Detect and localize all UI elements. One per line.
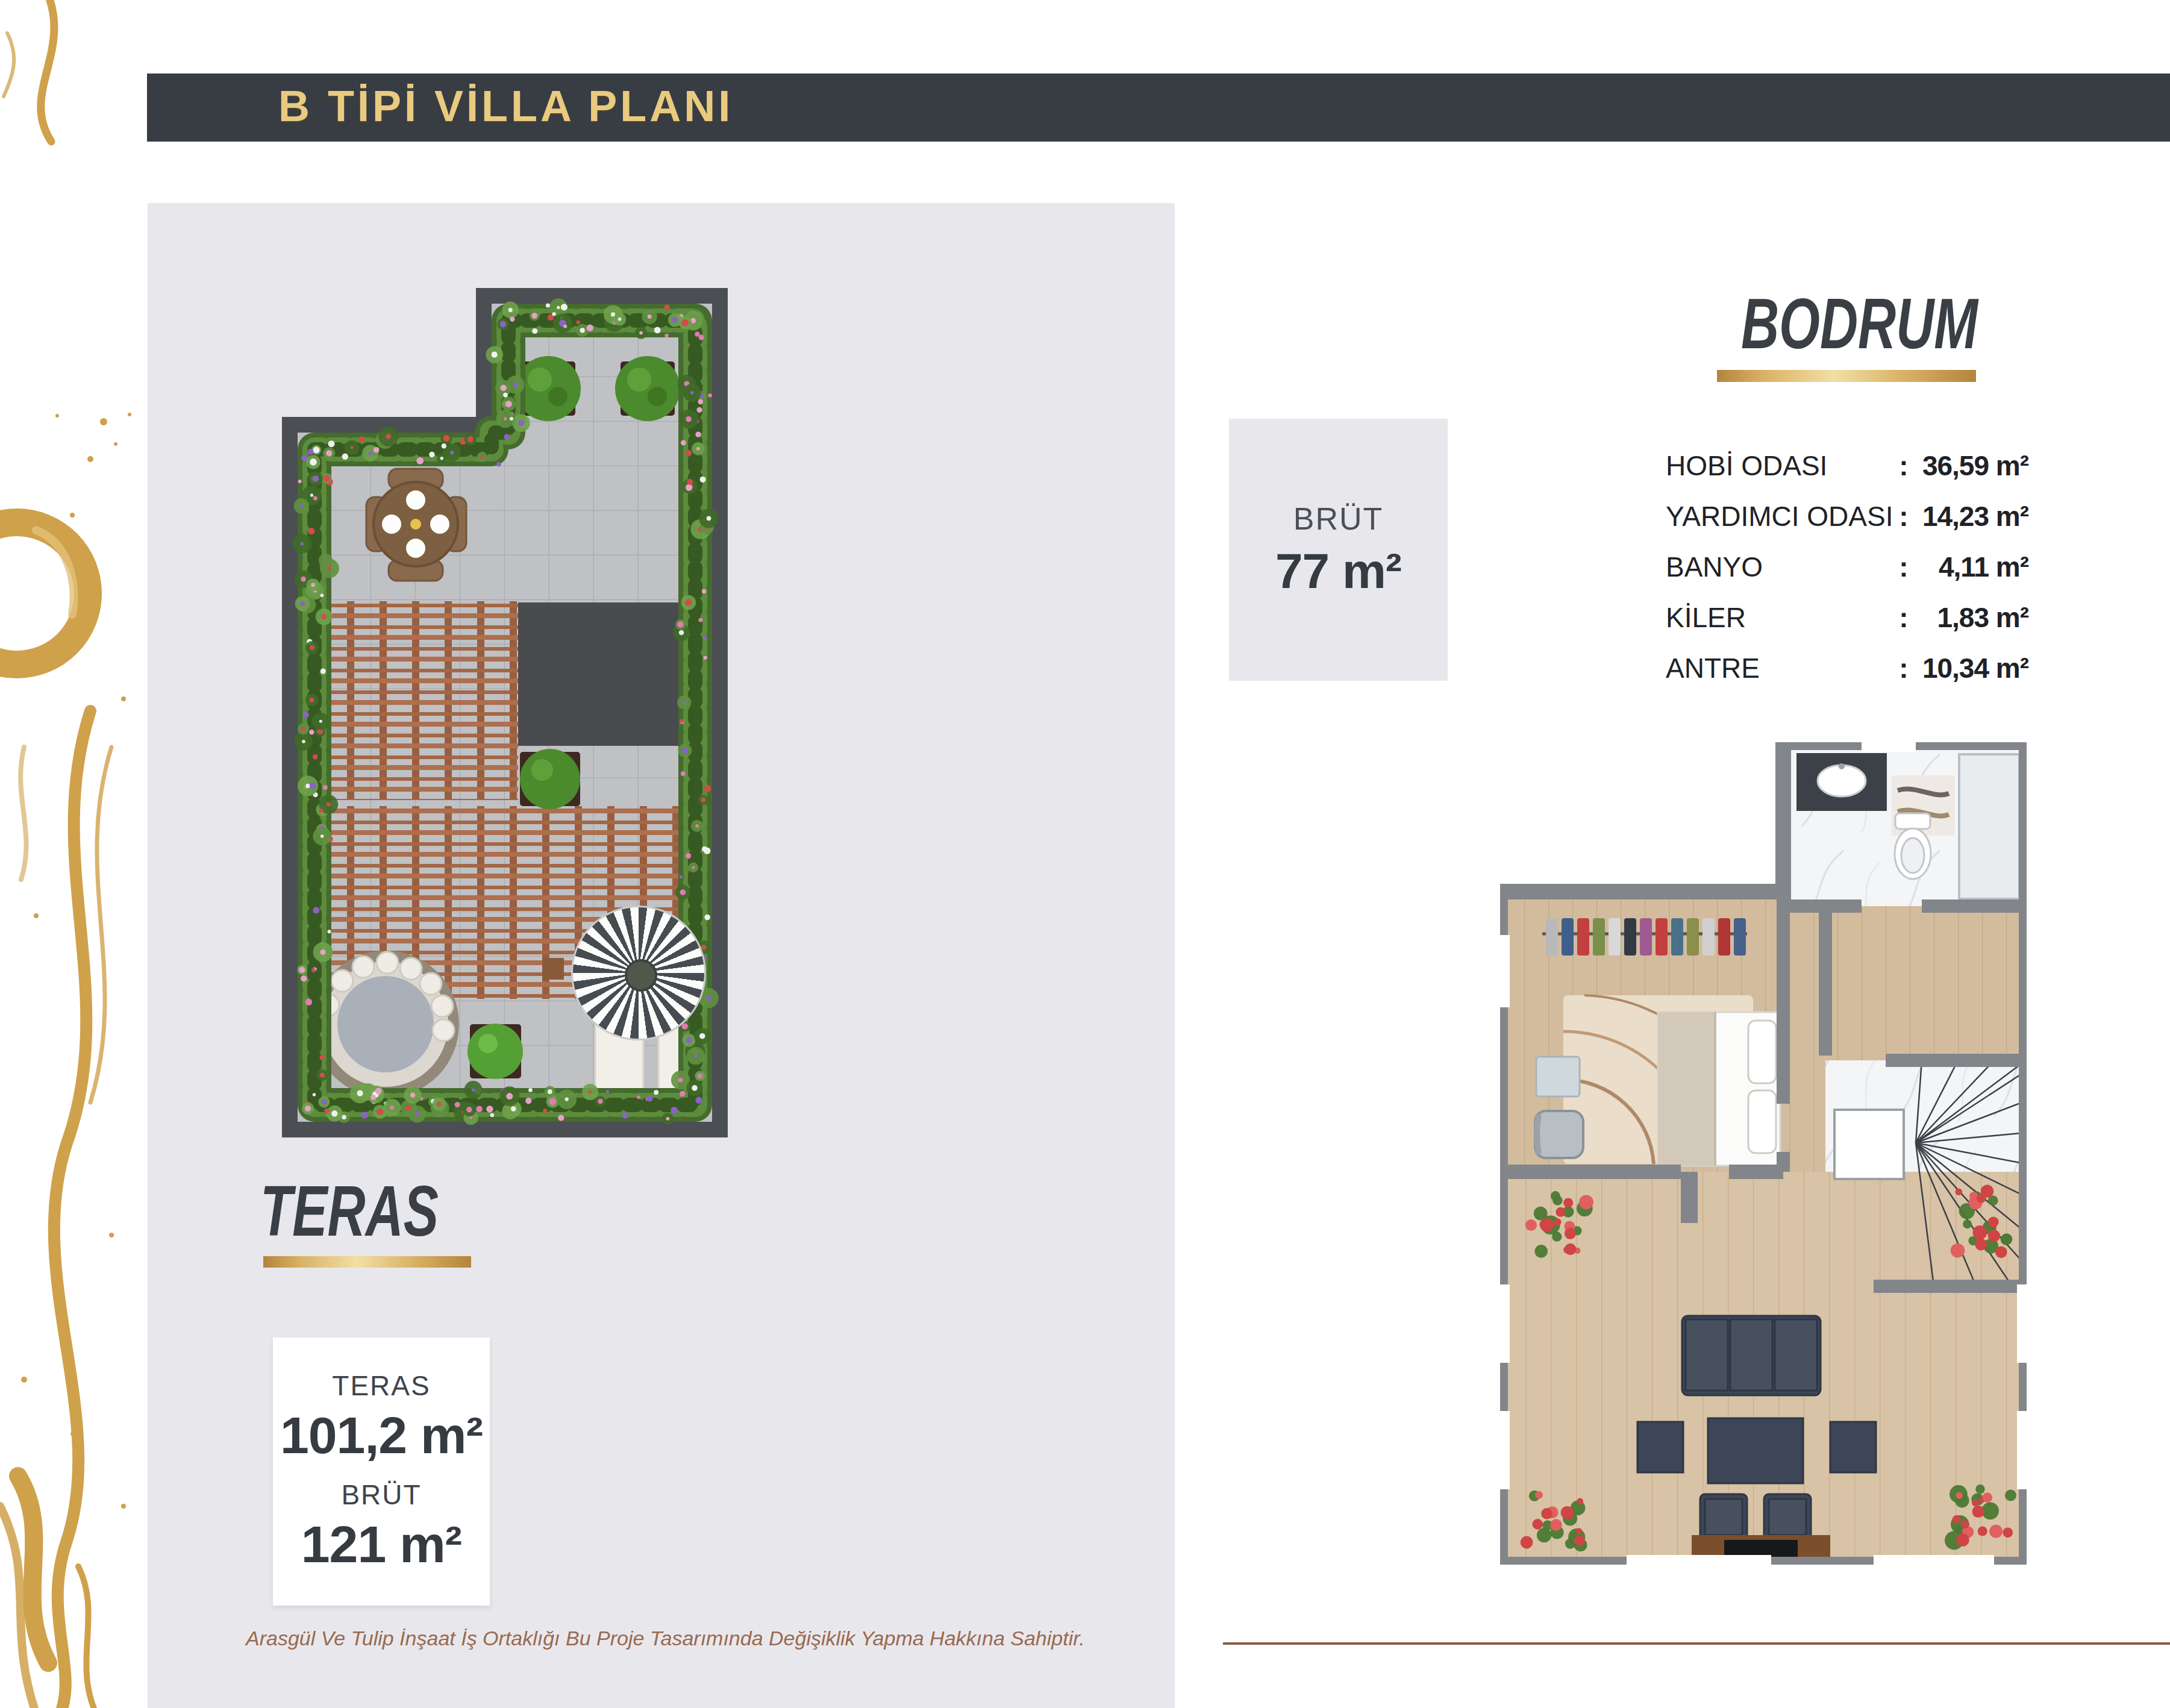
room-row: HOBİ ODASI:36,59 m² xyxy=(1666,440,2028,491)
bathroom-sink xyxy=(1796,753,1887,811)
coffee-table xyxy=(1708,1418,1803,1483)
room-separator: : xyxy=(1895,601,1913,634)
shower xyxy=(1959,754,2019,899)
stool-right xyxy=(1830,1422,1876,1472)
room-area: 1,83 m² xyxy=(1913,601,2028,634)
room-separator: : xyxy=(1895,551,1913,583)
wall-stub xyxy=(1681,1172,1698,1223)
planter-bush xyxy=(615,356,680,421)
room-row: ANTRE:10,34 m² xyxy=(1666,643,2028,693)
brochure-page: B TİPİ VİLLA PLANI xyxy=(0,0,2170,1708)
room-row: YARDIMCI ODASI:14,23 m² xyxy=(1666,491,2028,542)
bodrum-gross-value: 77 m² xyxy=(1275,543,1401,599)
bodrum-floor-plan-image xyxy=(1500,742,2027,1565)
teras-title: TERAS xyxy=(260,1175,439,1247)
room-name: BANYO xyxy=(1666,551,1895,583)
room-separator: : xyxy=(1895,449,1913,482)
room-area: 10,34 m² xyxy=(1913,652,2028,684)
pergola-left xyxy=(325,601,518,800)
page-title: B TİPİ VİLLA PLANI xyxy=(278,81,733,130)
side-table xyxy=(1536,1057,1580,1096)
room-name: ANTRE xyxy=(1666,652,1895,684)
room-area: 4,11 m² xyxy=(1913,551,2028,583)
bodrum-gross-box: BRÜT 77 m² xyxy=(1229,419,1448,681)
teras-gross-label: BRÜT xyxy=(341,1478,421,1511)
teras-area-value: 101,2 m² xyxy=(280,1406,483,1465)
round-daybed xyxy=(312,951,459,1098)
stool-left xyxy=(1637,1422,1683,1472)
teras-gold-underline xyxy=(263,1256,471,1268)
bed xyxy=(1658,1012,1780,1166)
room-separator: : xyxy=(1895,652,1913,684)
room-row: KİLER:1,83 m² xyxy=(1666,592,2028,643)
room-name: KİLER xyxy=(1666,601,1895,634)
footer-divider-line xyxy=(1223,1642,2170,1645)
room-separator: : xyxy=(1895,500,1913,533)
armchair-bedroom xyxy=(1535,1111,1583,1158)
room-name: HOBİ ODASI xyxy=(1666,449,1895,482)
header-bar: B TİPİ VİLLA PLANI xyxy=(147,74,2170,142)
gold-marble-decoration xyxy=(0,0,157,1708)
planter-bush xyxy=(520,749,580,809)
teras-info-box: TERAS 101,2 m² BRÜT 121 m² xyxy=(273,1337,490,1606)
planter-bush xyxy=(467,1024,523,1079)
bodrum-gold-underline xyxy=(1717,370,1976,382)
parasol-umbrella xyxy=(571,906,706,1040)
planter-bush xyxy=(516,356,581,421)
room-row: BANYO:4,11 m² xyxy=(1666,542,2028,592)
bodrum-title: BODRUM xyxy=(1741,288,1978,359)
bodrum-gross-label: BRÜT xyxy=(1293,501,1384,537)
sofa xyxy=(1682,1316,1821,1395)
teras-area-label: TERAS xyxy=(332,1369,430,1402)
footer-disclaimer: Arasgül Ve Tulip İnşaat İş Ortaklığı Bu … xyxy=(246,1627,1085,1650)
toilet xyxy=(1895,813,1931,879)
teras-gross-value: 121 m² xyxy=(301,1515,462,1574)
bodrum-room-list: HOBİ ODASI:36,59 m²YARDIMCI ODASI:14,23 … xyxy=(1666,440,2028,693)
room-area: 14,23 m² xyxy=(1913,500,2028,533)
room-name: YARDIMCI ODASI xyxy=(1666,500,1895,533)
room-area: 36,59 m² xyxy=(1913,449,2028,482)
